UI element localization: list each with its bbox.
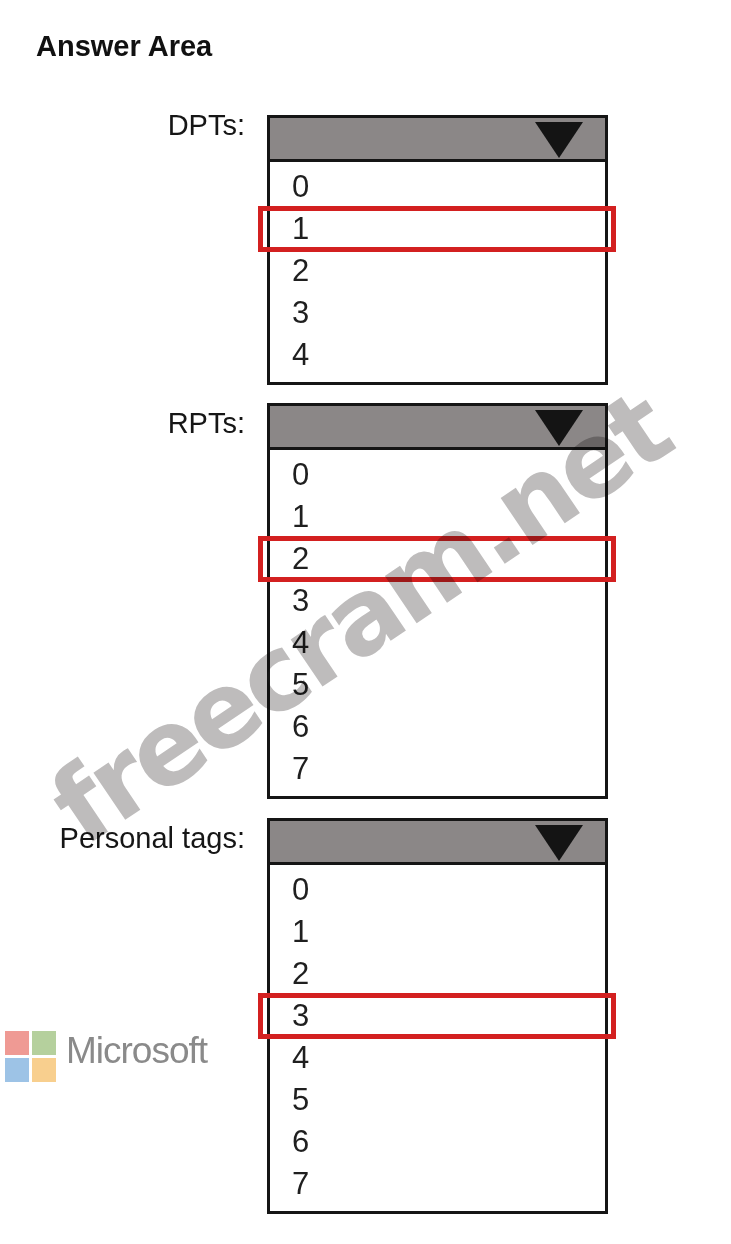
dropdown-label: Personal tags: [0, 822, 245, 855]
dropdown-option-selected[interactable]: 3 [270, 995, 605, 1037]
microsoft-logo-text: Microsoft [66, 1030, 207, 1072]
logo-square-red [5, 1031, 29, 1055]
dropdown-option[interactable]: 5 [270, 1079, 605, 1121]
logo-square-blue [5, 1058, 29, 1082]
dropdown-option[interactable]: 0 [270, 454, 605, 496]
dropdown-box: 01234567 [267, 818, 608, 1214]
chevron-down-icon[interactable] [535, 122, 583, 158]
dropdown-header[interactable] [270, 821, 605, 865]
dropdown-option[interactable]: 1 [270, 496, 605, 538]
chevron-down-icon[interactable] [535, 410, 583, 446]
dropdown-option[interactable]: 2 [270, 250, 605, 292]
dropdown-option-list: 01234567 [270, 450, 605, 796]
logo-square-orange [32, 1058, 56, 1082]
dropdown-option[interactable]: 1 [270, 911, 605, 953]
dropdown-option[interactable]: 6 [270, 1121, 605, 1163]
chevron-down-icon[interactable] [535, 825, 583, 861]
dropdown-option[interactable]: 5 [270, 664, 605, 706]
dropdown-label: RPTs: [0, 407, 245, 440]
logo-square-green [32, 1031, 56, 1055]
dropdown-option[interactable]: 3 [270, 580, 605, 622]
dropdown-option-list: 01234 [270, 162, 605, 382]
dropdown-option-list: 01234567 [270, 865, 605, 1211]
dropdown-header[interactable] [270, 118, 605, 162]
dropdown-option[interactable]: 3 [270, 292, 605, 334]
dropdown-option[interactable]: 7 [270, 748, 605, 790]
dropdown-option[interactable]: 7 [270, 1163, 605, 1205]
dropdown-option[interactable]: 4 [270, 1037, 605, 1079]
dropdown-option-selected[interactable]: 1 [270, 208, 605, 250]
microsoft-logo: Microsoft [5, 1031, 265, 1091]
dropdown-option[interactable]: 6 [270, 706, 605, 748]
dropdown-option[interactable]: 2 [270, 953, 605, 995]
dropdown-box: 01234567 [267, 403, 608, 799]
dropdown-option[interactable]: 4 [270, 622, 605, 664]
page-title: Answer Area [36, 30, 212, 63]
dropdown-header[interactable] [270, 406, 605, 450]
dropdown-option[interactable]: 4 [270, 334, 605, 376]
dropdown-option[interactable]: 0 [270, 166, 605, 208]
microsoft-logo-icon [5, 1031, 56, 1082]
dropdown-label: DPTs: [0, 109, 245, 142]
dropdown-box: 01234 [267, 115, 608, 385]
dropdown-option-selected[interactable]: 2 [270, 538, 605, 580]
answer-area-canvas: Answer Area DPTs: 01234 RPTs: 01234567 [0, 0, 731, 1244]
dropdown-option[interactable]: 0 [270, 869, 605, 911]
